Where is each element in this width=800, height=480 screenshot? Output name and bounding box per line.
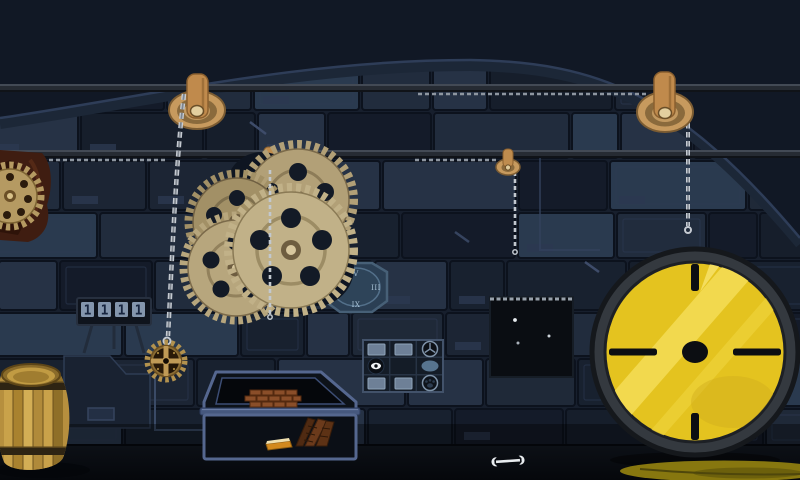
wall-panel-vent	[158, 196, 184, 204]
star-dot	[517, 342, 520, 345]
rail-bottom-highlight	[0, 150, 800, 152]
barrel-band	[0, 448, 74, 455]
gear-hub-pin	[286, 245, 296, 255]
paw-icon[interactable]	[423, 376, 438, 391]
shelf-alcove[interactable]	[200, 372, 360, 459]
rail-bottom-shadow	[0, 156, 800, 158]
wheel-hub	[682, 341, 708, 363]
clock-numeral-bottom: IX	[352, 301, 361, 309]
counter-digit: 1	[118, 304, 126, 319]
wall-panel	[0, 261, 57, 310]
wall-panel-vent	[263, 96, 289, 104]
wall-panel-vent	[455, 342, 481, 350]
grid-tile[interactable]	[395, 344, 412, 355]
wall-panel-vent	[619, 196, 645, 204]
grid-tile[interactable]	[368, 378, 385, 389]
star-box[interactable]	[490, 297, 573, 377]
symbol-grid[interactable]	[363, 340, 443, 392]
game-scene: V III IX VI	[0, 0, 800, 480]
gear-hub-pin	[7, 193, 13, 199]
counter-digit: 1	[84, 304, 92, 319]
wall-panel	[519, 161, 607, 210]
grid-tile[interactable]	[368, 344, 385, 355]
grid-tile[interactable]	[395, 378, 412, 389]
counter-digit: 1	[135, 304, 143, 319]
star-dot	[548, 335, 551, 338]
star-dot	[513, 318, 517, 322]
counter-digit: 1	[101, 304, 109, 319]
pulley-strap	[503, 149, 513, 167]
star-box-panel[interactable]	[490, 297, 573, 377]
oval-icon[interactable]	[422, 361, 439, 372]
pendant-hub	[163, 358, 170, 365]
eye-icon[interactable]	[368, 358, 384, 374]
wall-panel-vent	[459, 296, 485, 304]
wheel-icon[interactable]	[423, 342, 438, 357]
rail-top-highlight	[0, 84, 800, 86]
barrel-lid-inner	[13, 371, 49, 383]
pulley-hub	[505, 165, 510, 170]
band-highlight	[0, 447, 74, 449]
wall-panel	[307, 313, 349, 356]
pulley-hub	[191, 106, 204, 117]
wall-panel-vent	[72, 196, 98, 204]
brick-rows	[245, 390, 301, 407]
wall-inset-plate	[88, 408, 114, 420]
pulley-hub	[659, 108, 672, 119]
clock-numeral-right: III	[371, 284, 381, 292]
rail-top-shadow	[0, 90, 800, 92]
